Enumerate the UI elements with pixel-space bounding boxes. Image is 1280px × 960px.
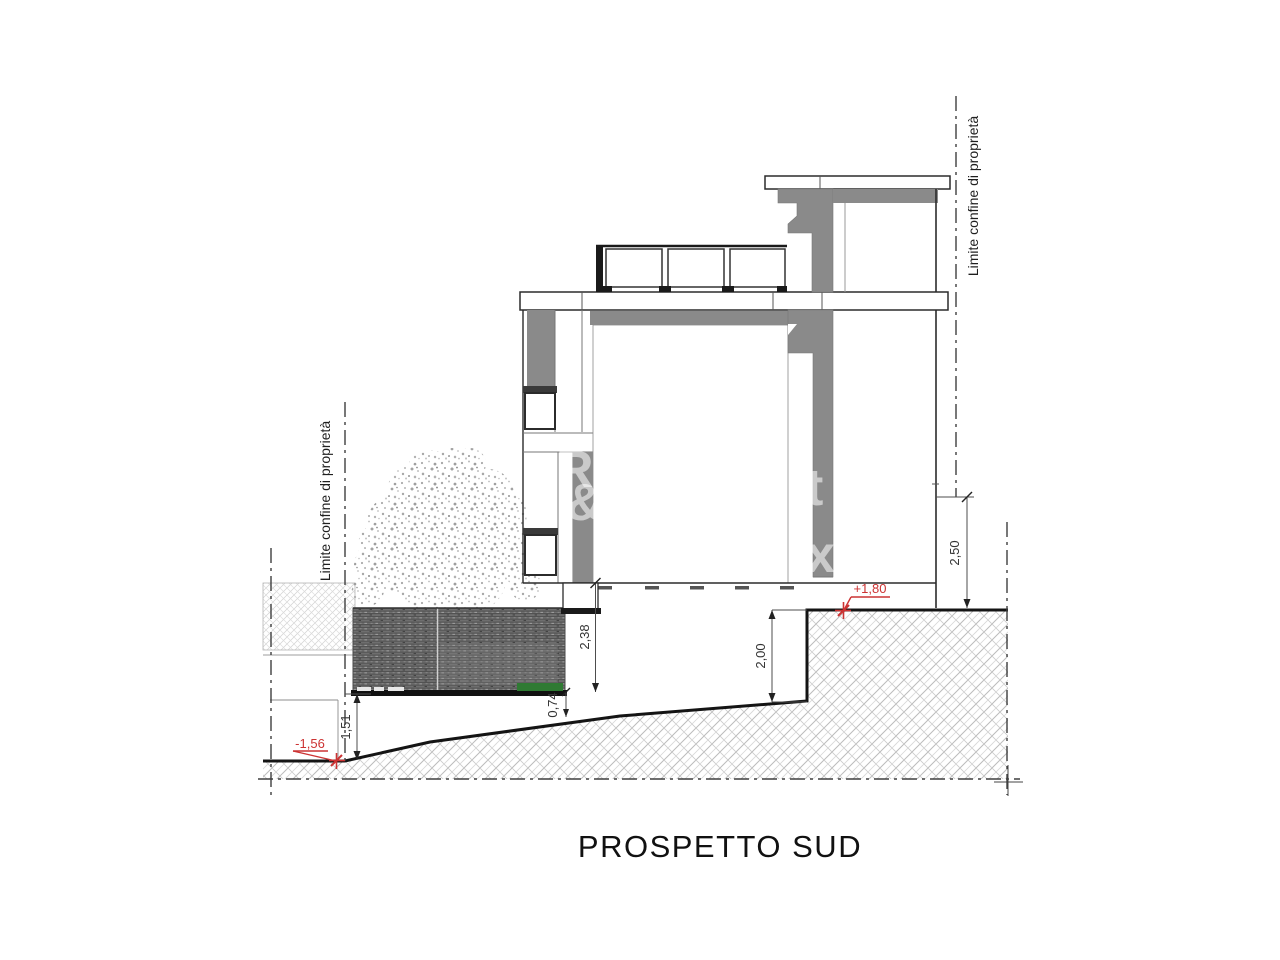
- railing-panel: [668, 249, 724, 287]
- plinth: [563, 583, 598, 610]
- boundary-label-right: Limite confine di proprietà: [965, 116, 981, 277]
- svg-text:0,74: 0,74: [545, 692, 560, 717]
- tree: [352, 448, 541, 613]
- window-upper: [525, 393, 555, 429]
- svg-text:-1,56: -1,56: [295, 736, 325, 751]
- drawing-title: PROSPETTO SUD: [578, 829, 862, 864]
- hedge-strip: [517, 683, 563, 691]
- dimension-right-wall: 2,50: [936, 492, 974, 608]
- svg-text:x: x: [806, 526, 835, 584]
- glass-opening: [593, 325, 788, 583]
- svg-text:2,38: 2,38: [577, 624, 592, 649]
- svg-text:&: &: [566, 474, 604, 532]
- fence-base-gaps: [357, 687, 404, 691]
- svg-text:2,00: 2,00: [753, 643, 768, 668]
- dimension-step: 2,00: [753, 610, 807, 702]
- dimension-plinth: 0,74: [545, 688, 570, 718]
- dimension-left-ground: 1,51: [338, 694, 371, 760]
- penthouse-wall: [778, 189, 833, 292]
- floor-ticks: [598, 586, 794, 590]
- elevation-drawing-page: Limite confine di proprietà Limite confi…: [0, 0, 1280, 960]
- main-floor-slab: [520, 292, 948, 310]
- window-lintel: [523, 528, 558, 535]
- south-elevation-drawing: Limite confine di proprietà Limite confi…: [0, 0, 1280, 960]
- railing-panel: [730, 249, 785, 287]
- window-lower: [525, 535, 556, 575]
- penthouse-beam: [833, 189, 938, 203]
- building: [520, 176, 950, 614]
- railing-panel: [606, 249, 662, 287]
- svg-text:1,51: 1,51: [338, 714, 353, 739]
- penthouse: [778, 189, 938, 292]
- window-lintel: [523, 386, 557, 393]
- fence: [351, 608, 567, 696]
- svg-text:+1,80: +1,80: [854, 581, 887, 596]
- boundary-label-left: Limite confine di proprietà: [317, 421, 333, 582]
- svg-text:2,50: 2,50: [947, 540, 962, 565]
- terrace-railing: [596, 246, 787, 292]
- svg-text:t: t: [806, 459, 823, 517]
- wall-panel-upper-left: [527, 310, 555, 387]
- roof-slab: [765, 176, 950, 189]
